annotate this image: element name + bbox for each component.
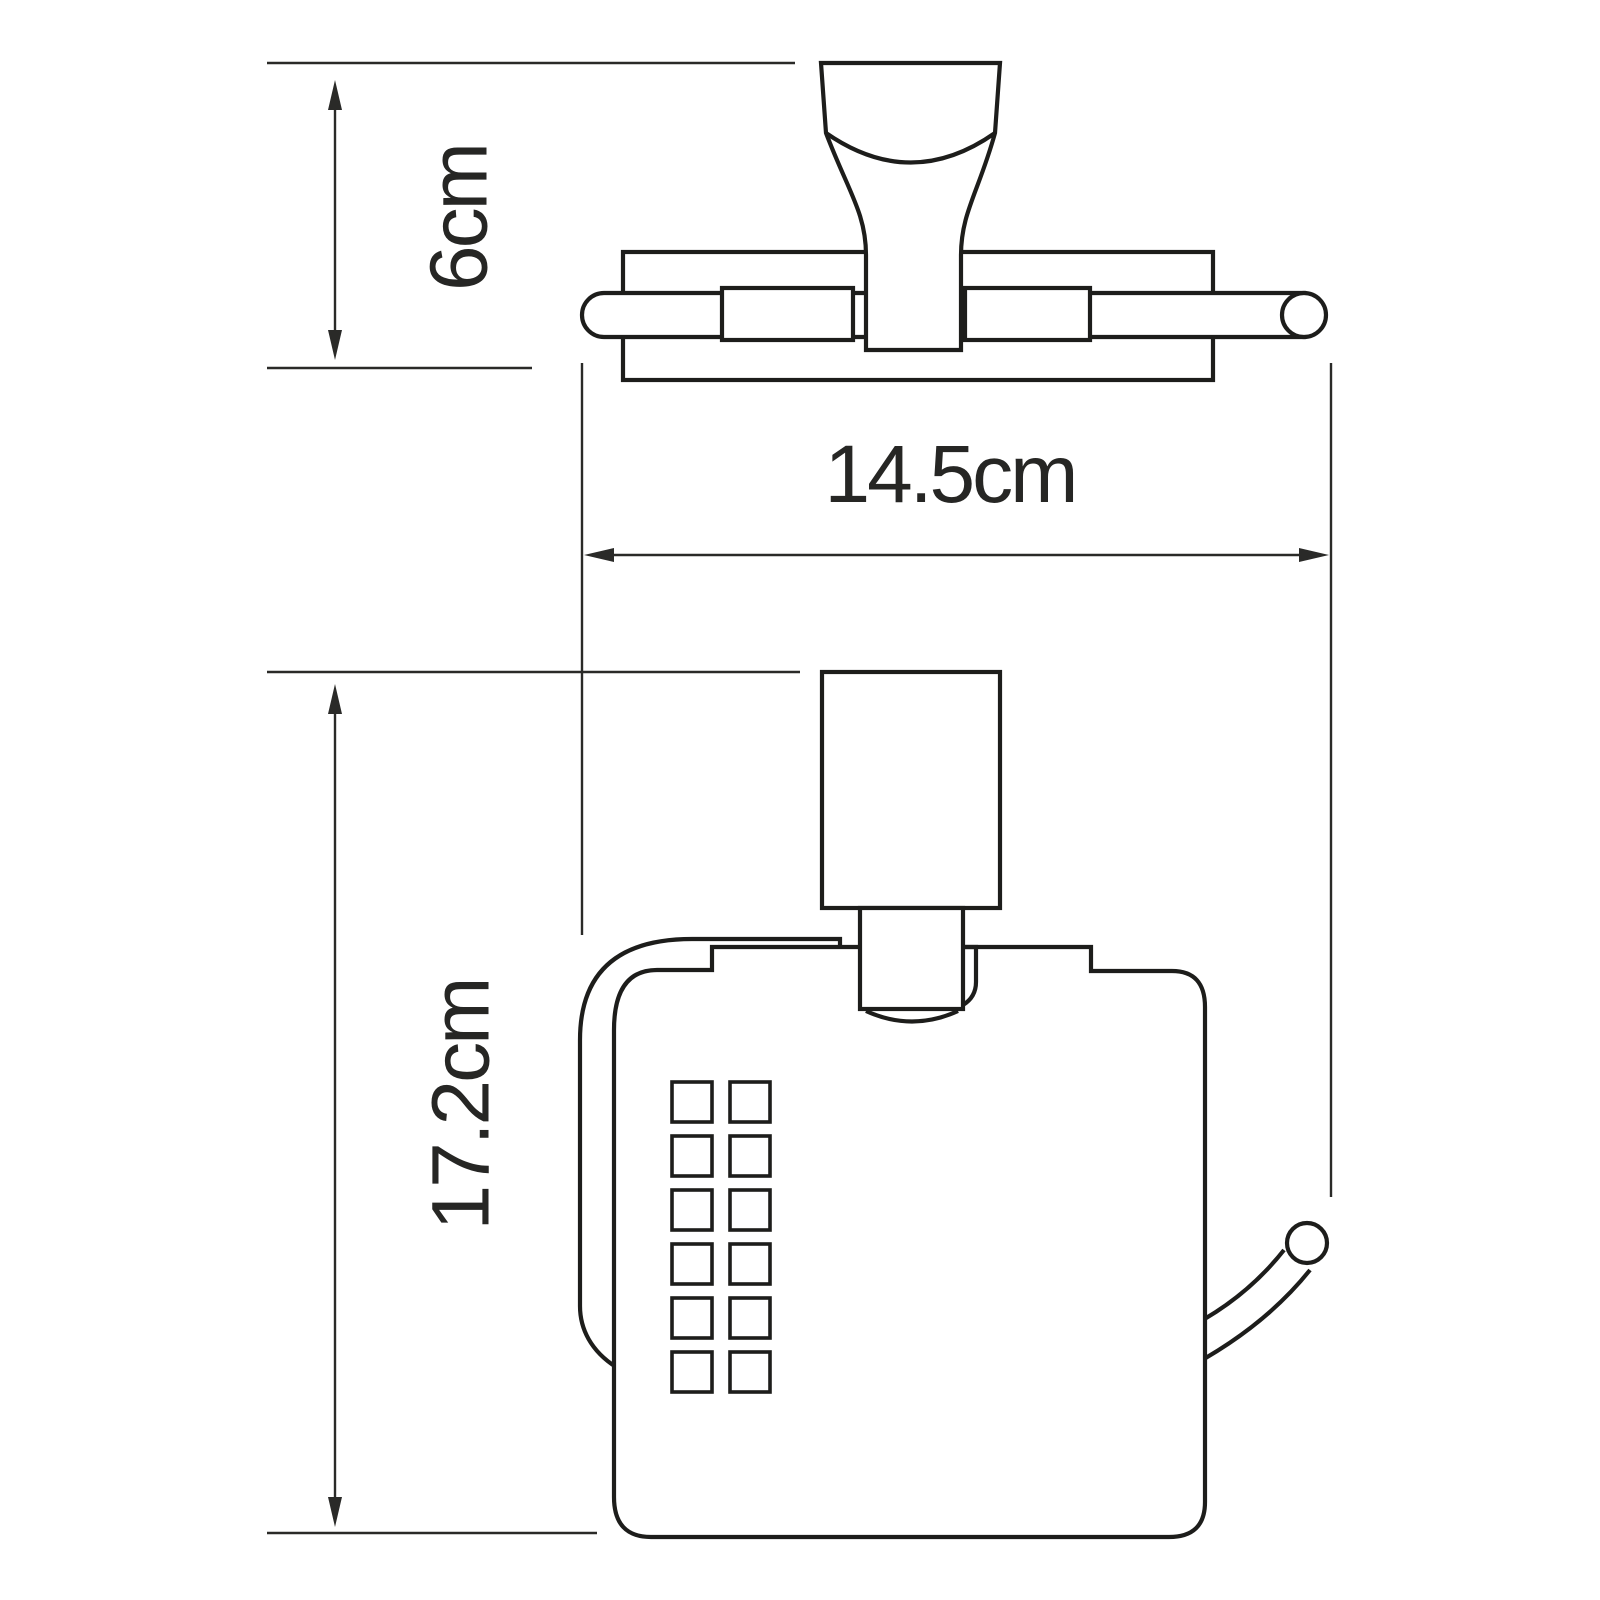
vent-square [730,1298,770,1338]
wall-mount-stem-front-view [822,672,1000,908]
dimension-label-17-2cm: 17.2cm [416,980,507,1231]
vent-square [730,1352,770,1392]
arrowhead-left-icon [584,548,614,562]
arrowhead-down-icon [328,330,342,360]
dimension-label-6cm: 6cm [414,145,505,291]
vent-square [672,1298,712,1338]
dimension-label-14-5cm: 14.5cm [825,429,1076,520]
drawing-page: 6cm 14.5cm 17.2cm [0,0,1600,1600]
vent-square [672,1082,712,1122]
hinge-mount-block [860,908,963,1009]
technical-drawing: 6cm 14.5cm 17.2cm [0,0,1600,1600]
top-view [582,63,1326,380]
arrowhead-down-icon [328,1497,342,1527]
front-view [580,672,1327,1537]
arrowhead-right-icon [1299,548,1329,562]
vent-square [672,1244,712,1284]
vent-square [672,1136,712,1176]
vent-square [730,1190,770,1230]
roller-sleeve-right [965,288,1090,340]
roller-sleeve-left [722,288,853,340]
vent-square [672,1352,712,1392]
vent-square [730,1244,770,1284]
arrowhead-up-icon [328,80,342,110]
vent-square [730,1082,770,1122]
vent-square [672,1190,712,1230]
vent-square [730,1136,770,1176]
arrowhead-up-icon [328,684,342,714]
roller-bar-end-cap [1282,293,1326,337]
holder-cover [614,947,1205,1537]
hook-tip-ball [1287,1223,1327,1263]
